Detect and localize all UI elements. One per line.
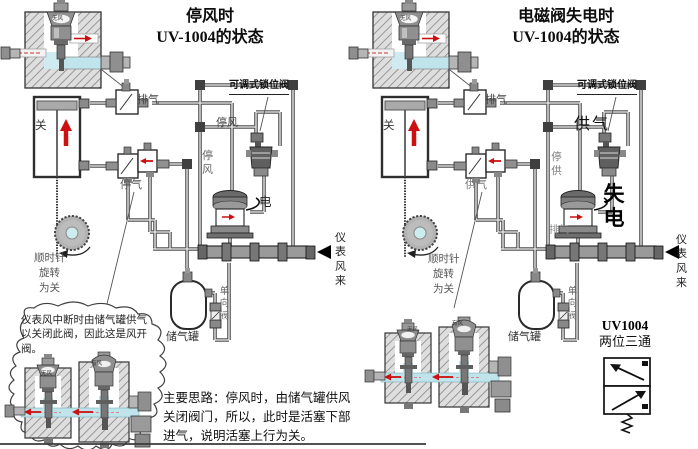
right-label-exhaust-small: 排气	[549, 225, 569, 238]
right-label-lost-power: 失电	[601, 183, 627, 230]
left-rotation-line2: 旋转	[39, 266, 80, 281]
left-label-stop-air: 停气	[120, 179, 142, 193]
right-rotation-line2: 旋转	[433, 267, 474, 282]
left-label-check-valve: 单向阀	[219, 286, 230, 323]
right-label-closed: 关	[383, 119, 395, 133]
left-title-line1: 停风时	[128, 7, 292, 28]
right-rotation-line1: 顺时针	[428, 252, 474, 267]
right-pair-tag-has-wind: 有风	[452, 321, 463, 328]
left-cloud-note: 仪表风中断时由储气罐供气以关闭此阀，因此这是风开阀。	[21, 314, 154, 357]
right-label-tank: 储气罐	[508, 331, 541, 345]
left-label-stop-wind-v: 停风	[201, 149, 214, 178]
right-title: 电磁阀失电时 UV-1004的状态	[476, 7, 656, 49]
right-title-line2: UV-1004的状态	[476, 28, 656, 49]
right-label-supply: 供气	[574, 115, 610, 135]
left-pair-tag-has-wind: 有风	[91, 361, 102, 368]
right-label-instrument-air: 仪表风来	[675, 233, 688, 290]
left-label-exhaust: 排气	[137, 94, 159, 108]
left-label-rotation: 顺时针 旋转 为关	[34, 251, 80, 297]
right-assembly-tag: 无风	[400, 16, 411, 23]
left-assembly-tag: 无风	[52, 16, 63, 23]
left-label-lock-valve: 可调式锁位阀	[229, 80, 289, 95]
left-label-closed: 关	[35, 119, 47, 133]
left-rotation-line3: 为关	[39, 281, 80, 296]
uv1004-symbol	[604, 358, 650, 433]
right-label-supply-small: 供气	[465, 179, 487, 193]
left-rotation-line1: 顺时针	[34, 251, 80, 266]
right-label-rotation: 顺时针 旋转 为关	[428, 252, 474, 298]
right-label-lock-valve: 可调式锁位阀	[577, 80, 637, 95]
schematic-svg	[0, 0, 698, 449]
right-title-line1: 电磁阀失电时	[476, 7, 656, 28]
left-label-instrument-air: 仪表风来	[334, 231, 347, 288]
right-uv-subtitle: 两位三通	[589, 334, 661, 350]
left-main-idea: 主要思路：停风时，由储气罐供风关闭阀门，所以，此时是活塞下部进气，说明活塞上行为…	[163, 389, 357, 445]
left-label-tank: 储气罐	[166, 331, 199, 345]
left-label-electric: 电	[259, 195, 272, 211]
left-pair-tag-no-wind: 无风	[41, 371, 52, 378]
diagram-canvas: 停风时 UV-1004的状态 排气 可调式锁位阀 停风 停风 停气 电 关 顺时…	[0, 0, 698, 449]
right-label-check-valve: 单向阀	[567, 286, 578, 323]
right-rotation-line3: 为关	[433, 282, 474, 297]
right-label-exhaust: 排气	[485, 94, 507, 108]
right-pair-tag-no-wind: 无风	[407, 327, 418, 334]
left-title: 停风时 UV-1004的状态	[128, 7, 292, 49]
right-uv-title: UV1004	[596, 318, 654, 335]
right-schematic	[349, 0, 679, 340]
left-label-stop-wind-h: 停风	[216, 117, 238, 131]
left-title-line2: UV-1004的状态	[128, 28, 292, 49]
spring-icon	[622, 414, 632, 433]
right-label-stop-supply: 停供	[550, 151, 563, 178]
right-valve-pair-detail	[365, 317, 511, 413]
